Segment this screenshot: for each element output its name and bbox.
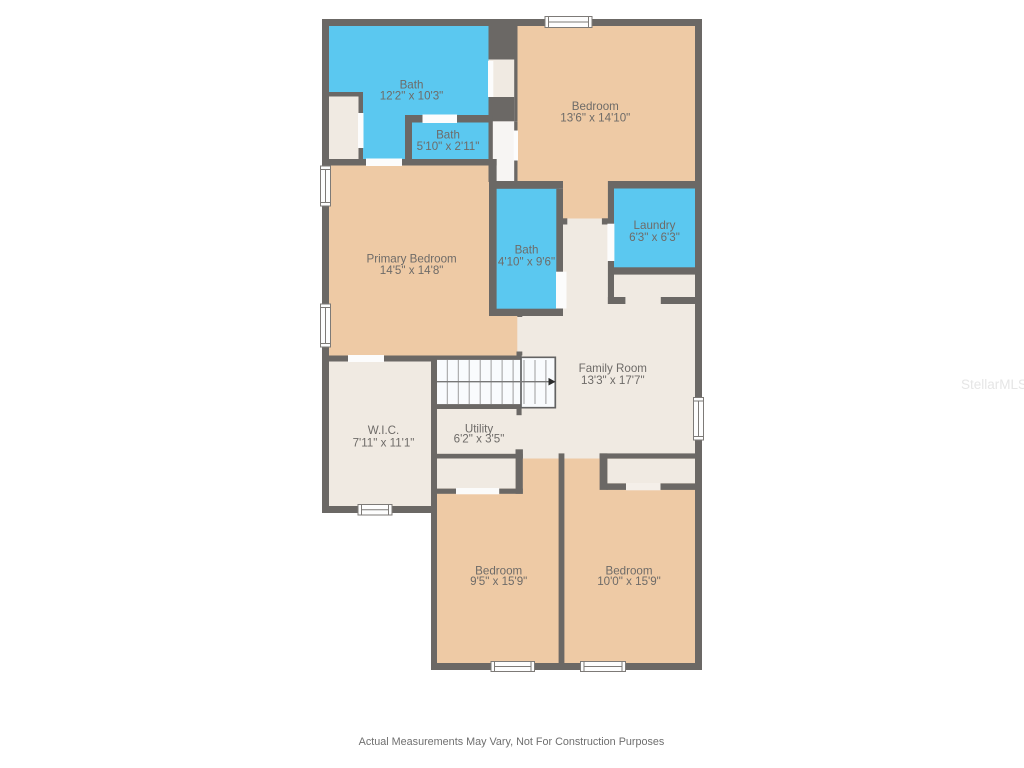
- svg-text:14'5" x 14'8": 14'5" x 14'8": [380, 264, 444, 277]
- svg-text:4'10" x 9'6": 4'10" x 9'6": [498, 256, 555, 269]
- svg-text:10'0" x 15'9": 10'0" x 15'9": [597, 575, 661, 588]
- svg-text:Actual Measurements May Vary,: Actual Measurements May Vary, Not For Co…: [359, 736, 665, 748]
- svg-text:7'11" x 11'1": 7'11" x 11'1": [353, 437, 415, 450]
- svg-text:StellarMLS: StellarMLS: [961, 377, 1024, 392]
- svg-text:W.I.C.: W.I.C.: [368, 424, 400, 437]
- svg-text:12'2" x 10'3": 12'2" x 10'3": [380, 90, 444, 103]
- svg-text:13'6" x 14'10": 13'6" x 14'10": [560, 112, 630, 125]
- svg-text:13'3" x 17'7": 13'3" x 17'7": [581, 374, 645, 387]
- svg-text:5'10" x 2'11": 5'10" x 2'11": [417, 140, 480, 153]
- svg-text:6'3" x 6'3": 6'3" x 6'3": [629, 231, 680, 244]
- svg-text:9'5" x 15'9": 9'5" x 15'9": [470, 575, 527, 588]
- svg-text:6'2" x 3'5": 6'2" x 3'5": [454, 433, 505, 446]
